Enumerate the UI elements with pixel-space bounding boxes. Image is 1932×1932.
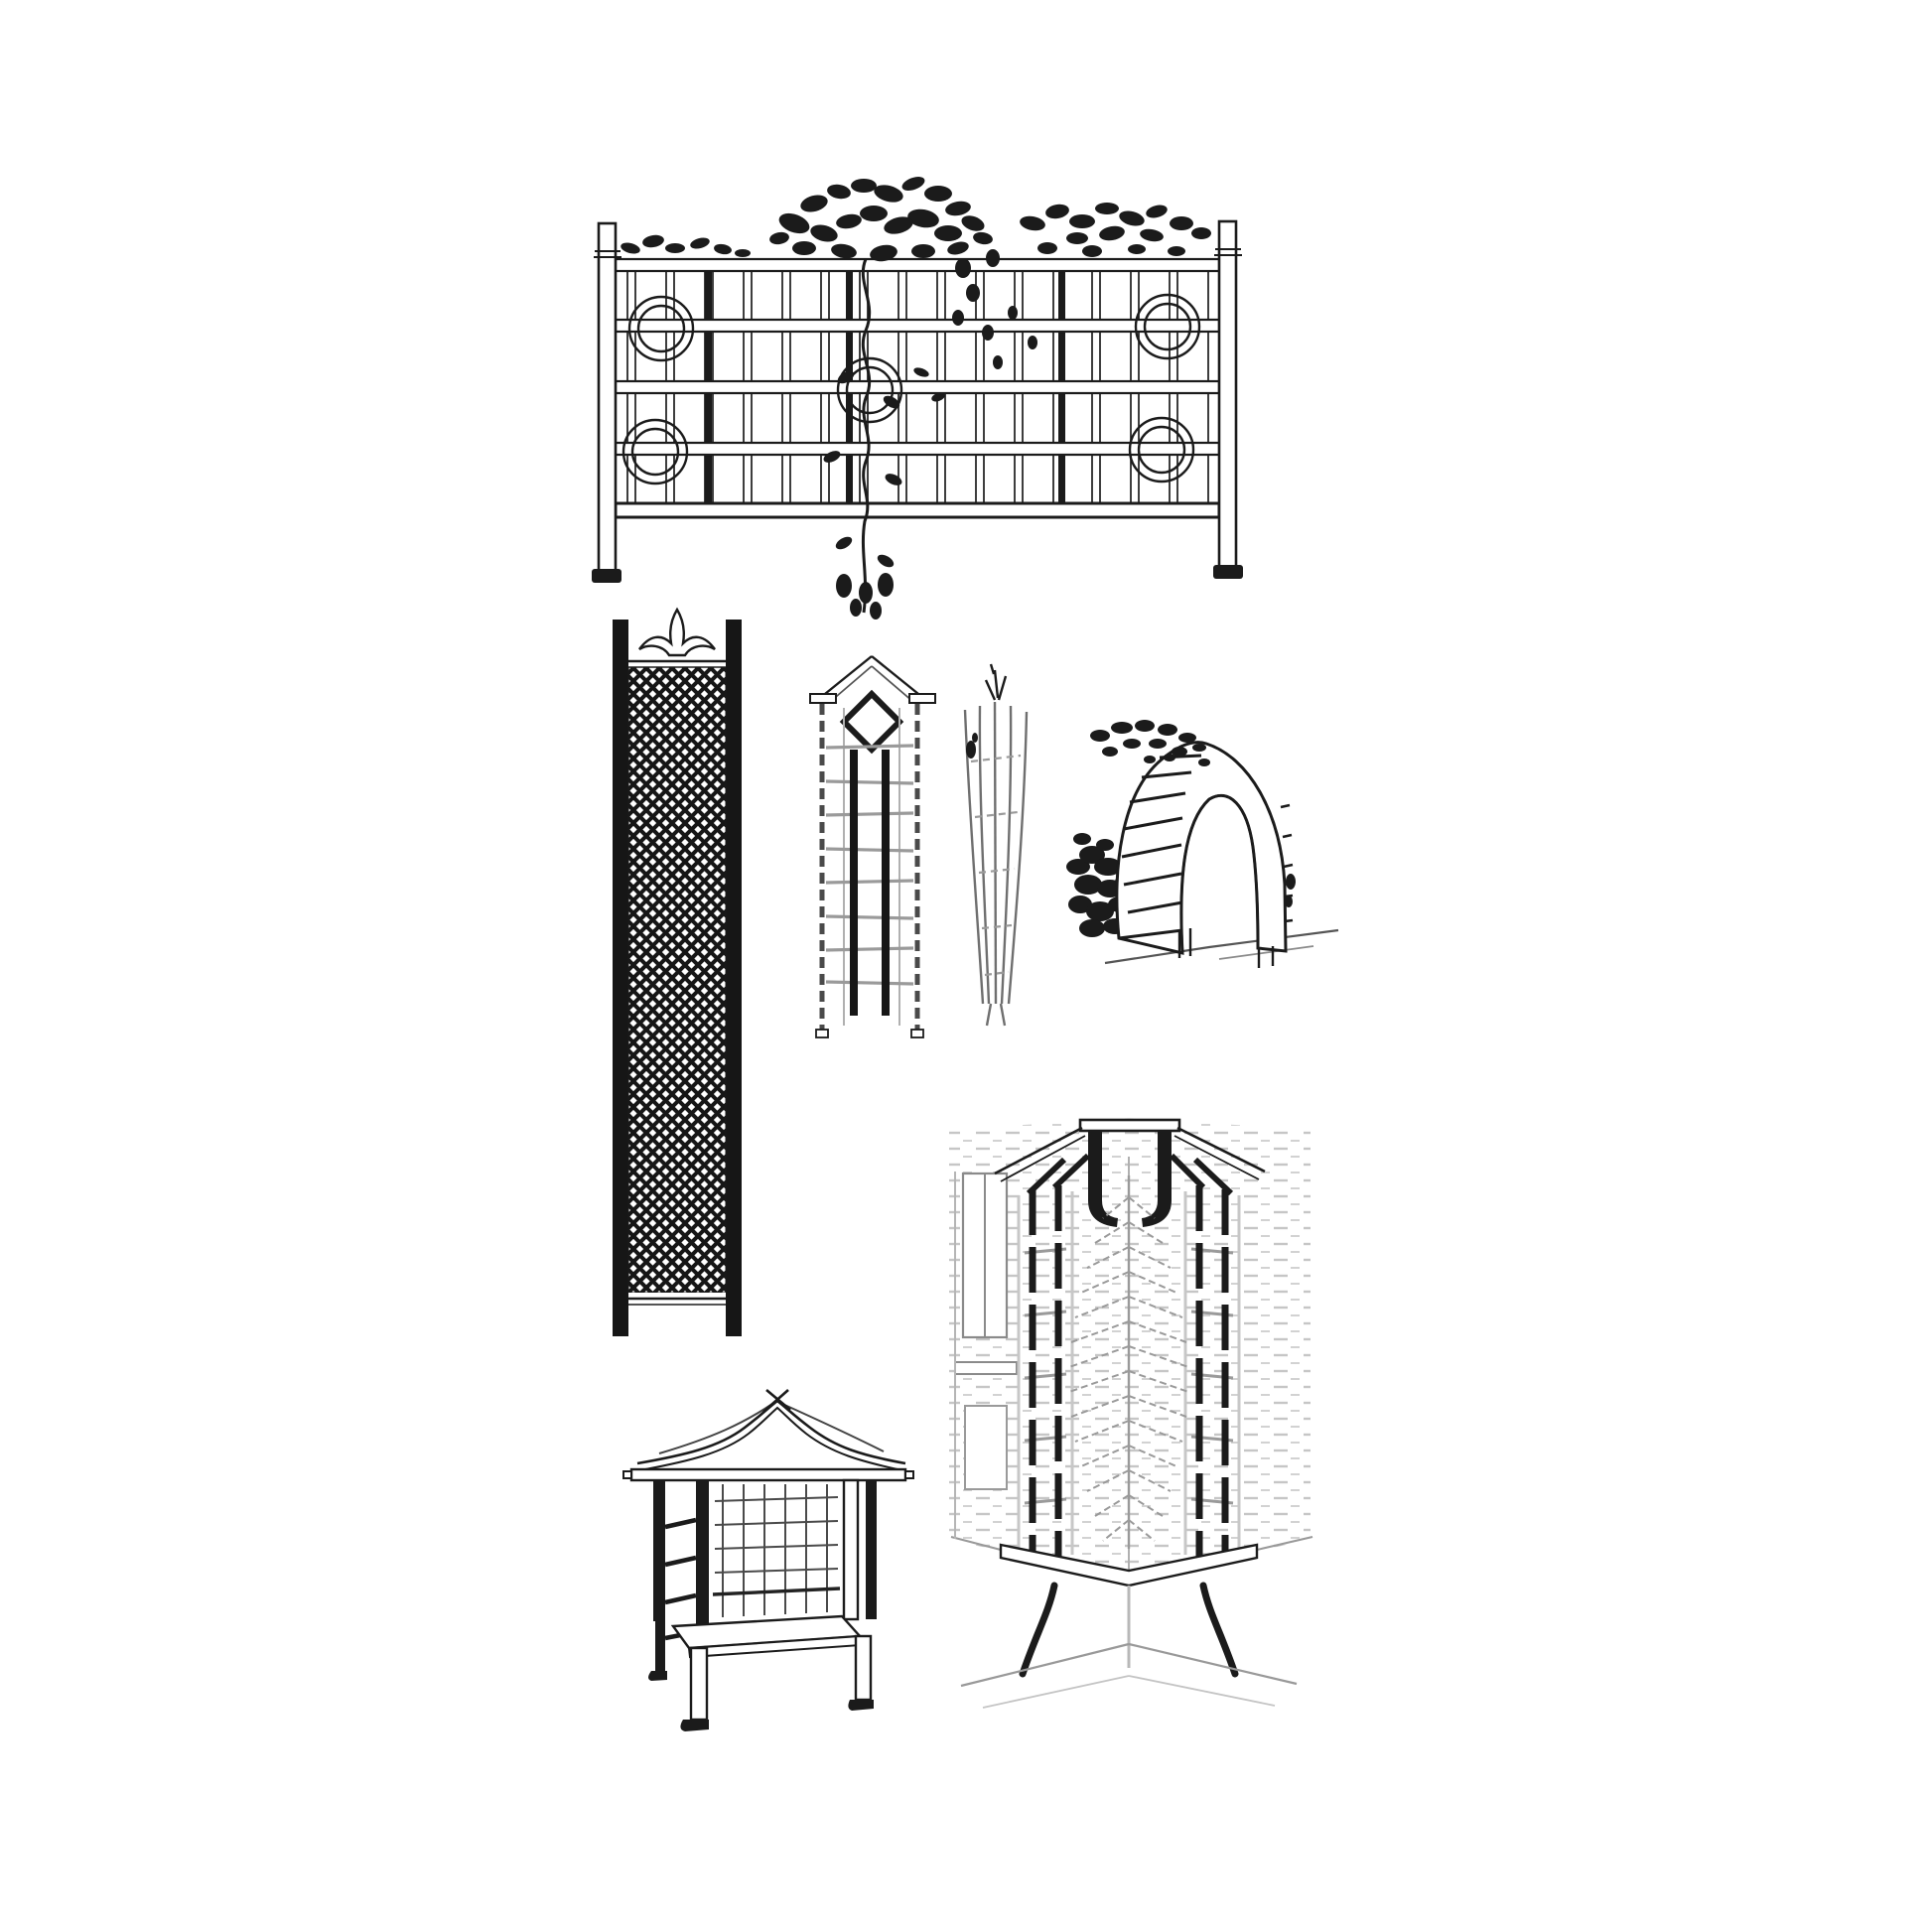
lattice-bottom-rail <box>628 1293 726 1309</box>
fan-trellis-figure <box>951 650 1055 1057</box>
arch-band <box>1117 743 1286 953</box>
lattice-crest-base <box>628 661 726 667</box>
fan-top-tuft <box>986 664 1006 700</box>
lattice-panel-figure <box>608 604 747 1343</box>
corner-trellis-figure <box>943 1112 1320 1708</box>
trellis-rail-feet <box>816 1030 923 1037</box>
fan-dark-blotch <box>966 733 978 759</box>
trellis-illustration-sheet <box>0 0 1932 1932</box>
lattice-infill <box>628 667 726 1293</box>
arbor-side-ladder <box>665 1520 696 1638</box>
arbor-back-lattice <box>713 1484 840 1617</box>
lattice-crest <box>639 610 715 655</box>
fence-right-post <box>1213 221 1243 579</box>
arbor-bench-figure <box>623 1388 913 1737</box>
fence-left-post <box>592 223 621 583</box>
arch-trellis-figure <box>1070 718 1343 981</box>
floor-lines <box>961 1586 1297 1708</box>
arbor-roof <box>637 1390 905 1469</box>
ladder-trellis-figure <box>806 650 940 1047</box>
diamond-motif <box>844 694 899 750</box>
arbor-eave-bar <box>623 1469 913 1480</box>
trellis-fence-panel-figure <box>496 164 1251 630</box>
